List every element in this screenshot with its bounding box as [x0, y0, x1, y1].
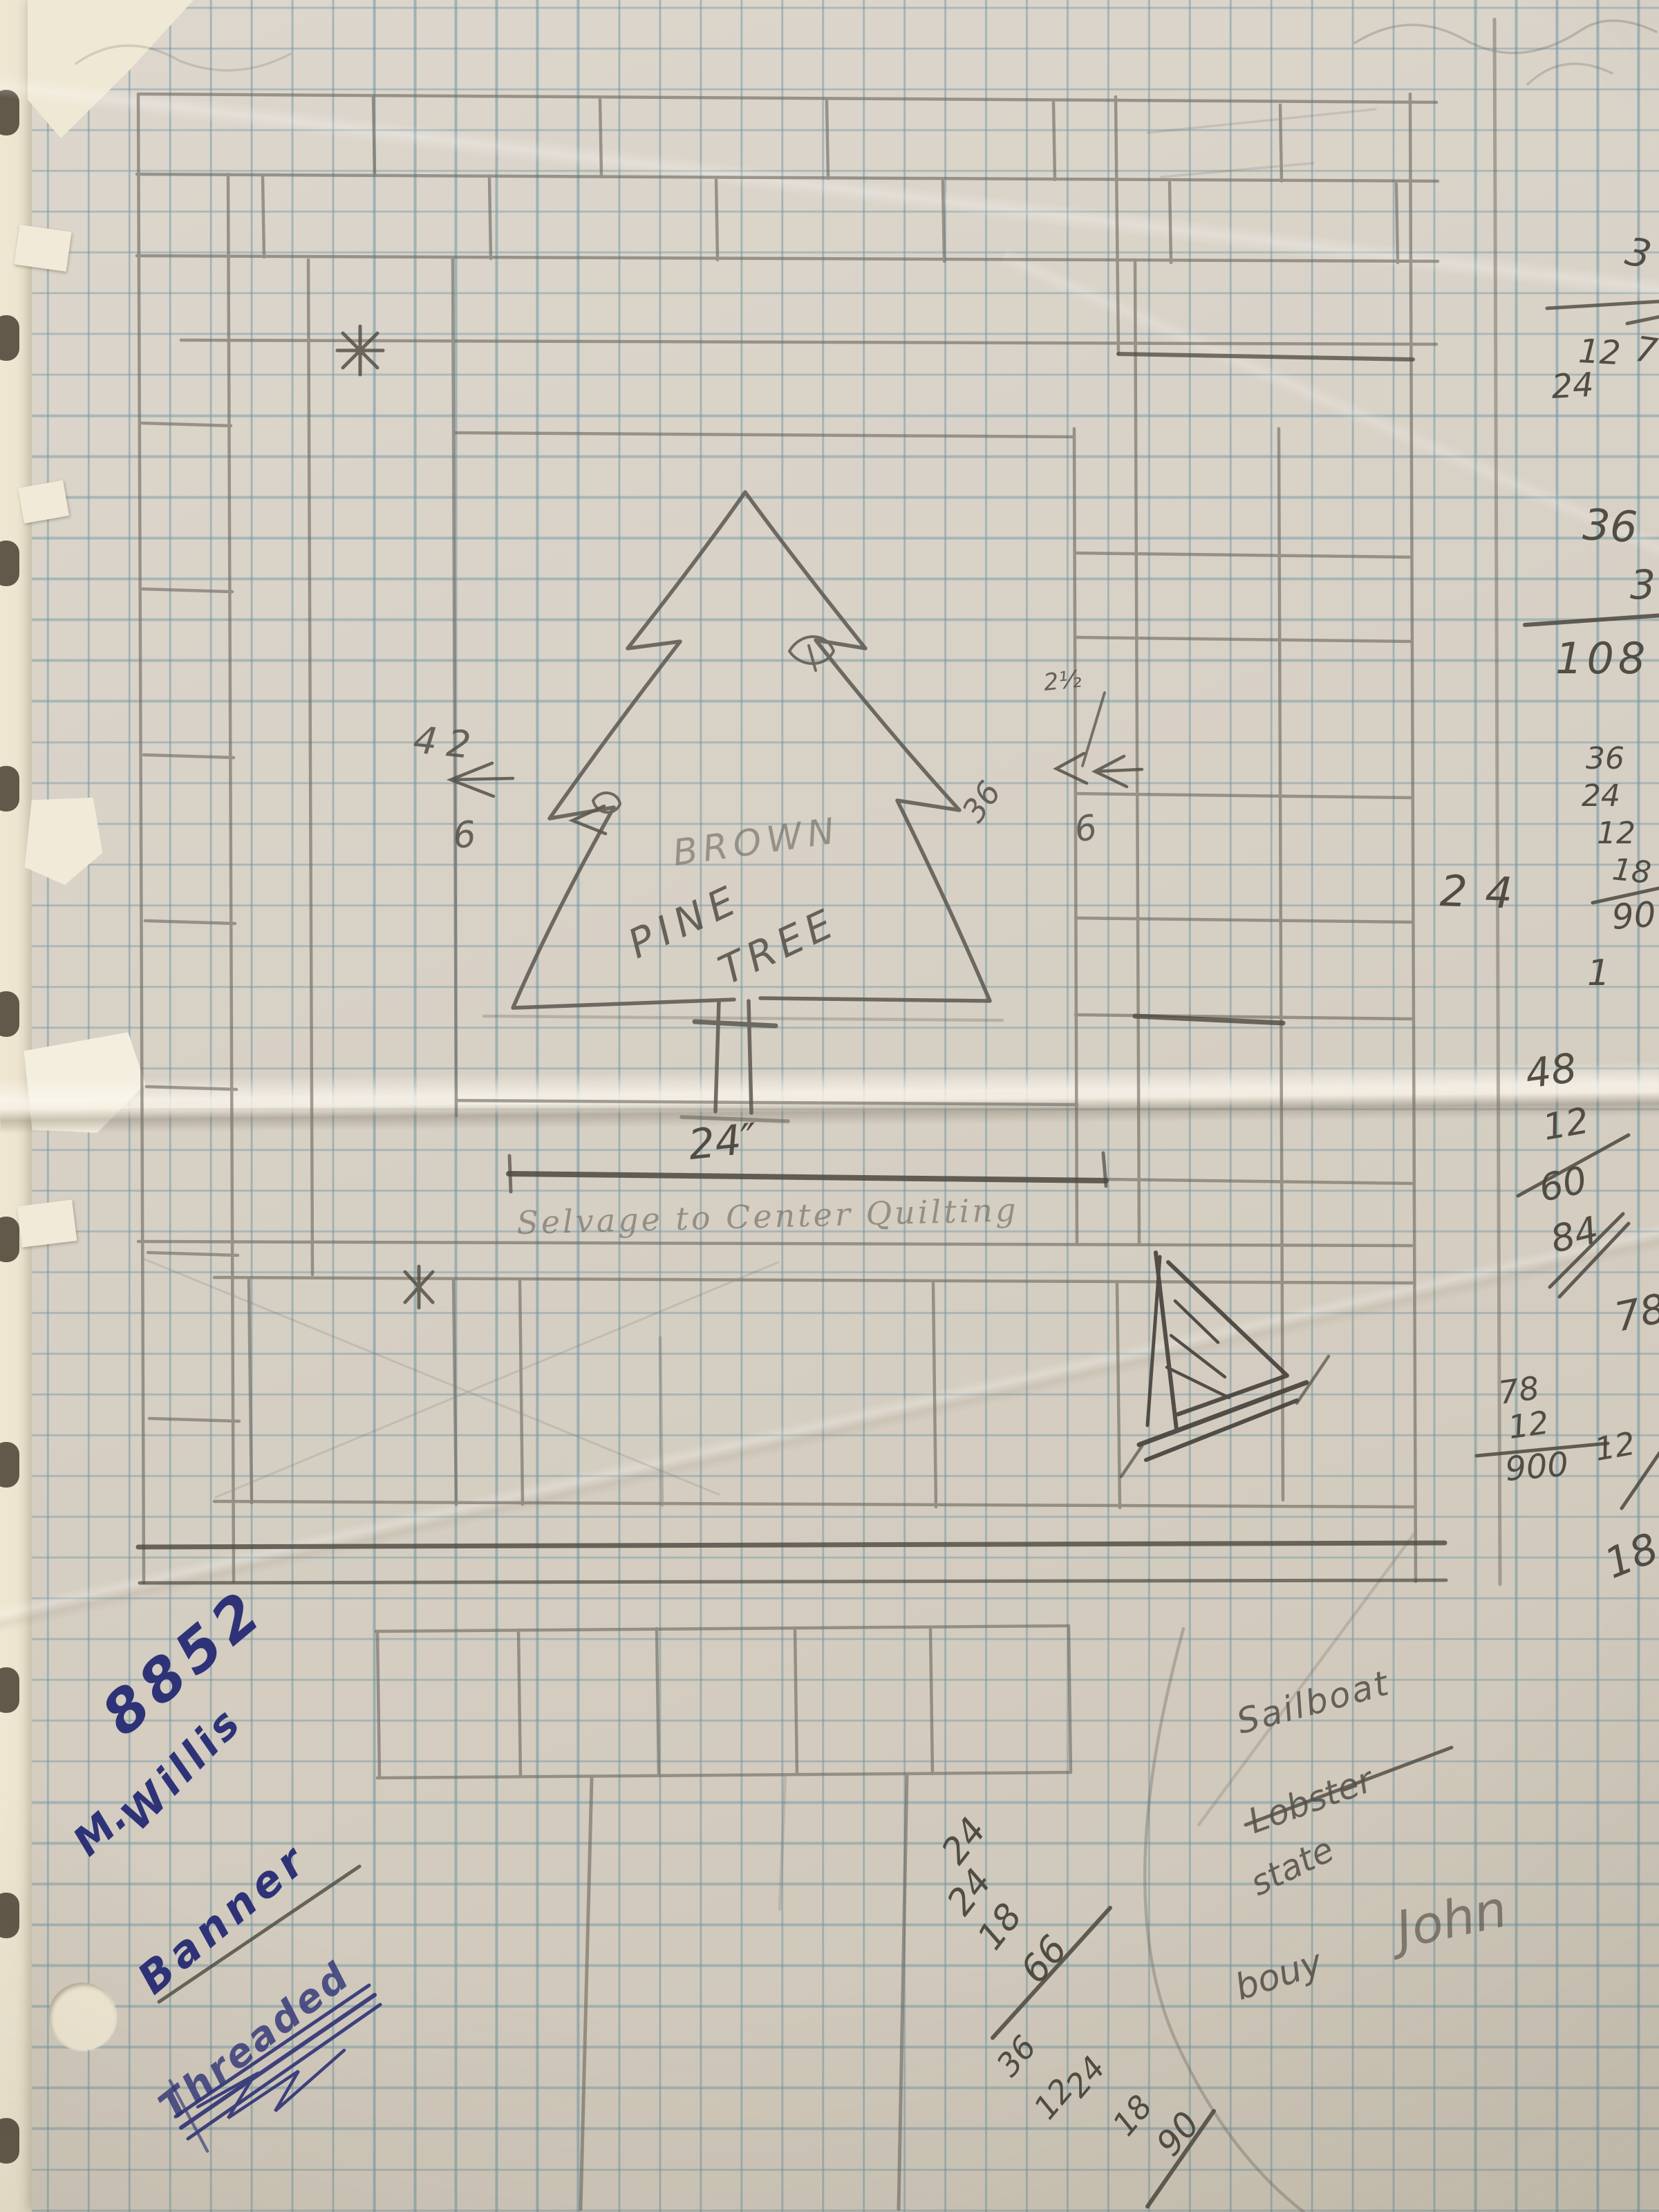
torn-edge-tab	[14, 225, 71, 272]
margin-add-18: 18	[1611, 852, 1653, 891]
margin-add-36: 36	[1586, 741, 1624, 776]
photo-of-sketch: BROWN PINE TREE 24″ Selvage to Center Qu…	[0, 0, 1659, 2212]
margin-mult-36: 36	[1582, 499, 1639, 552]
margin-add-24: 24	[1582, 778, 1620, 814]
margin-pair-bottom: 24	[1550, 366, 1595, 406]
margin-add-sum: 90	[1611, 894, 1658, 937]
binder-hole	[0, 766, 19, 812]
margin-add2-crossed-12: 12	[1592, 1425, 1638, 1468]
margin-fragment-seven: 7	[1633, 329, 1659, 372]
binder-hole	[0, 991, 19, 1037]
left-small-dimension: 6	[451, 814, 478, 857]
margin-seq-12-crossed: 12	[1540, 1100, 1593, 1149]
binder-hole	[0, 1667, 19, 1713]
margin-add2-sum: 900	[1503, 1445, 1570, 1489]
margin-mult-3: 3	[1630, 561, 1656, 608]
margin-add-12: 12	[1597, 816, 1635, 851]
margin-mult-product: 108	[1555, 633, 1649, 684]
torn-edge-tab	[17, 1199, 77, 1247]
binder-hole	[0, 1893, 19, 1938]
binder-hole	[0, 2118, 19, 2164]
margin-lone-one: 1	[1587, 953, 1610, 994]
right-fraction-dimension: 2½	[1042, 666, 1082, 697]
margin-seq-48: 48	[1523, 1044, 1580, 1098]
binder-hole	[0, 90, 19, 135]
margin-big-24: 24	[1439, 865, 1531, 919]
binder-hole	[0, 1217, 19, 1262]
left-height-dimension: 42	[411, 718, 482, 768]
binder-hole	[0, 315, 19, 361]
binder-hole	[0, 1442, 19, 1488]
center-width-dimension: 24″	[686, 1114, 760, 1170]
hole-punch	[48, 1983, 116, 2050]
binder-hole	[0, 541, 19, 586]
margin-add2-78: 12	[1506, 1403, 1550, 1446]
